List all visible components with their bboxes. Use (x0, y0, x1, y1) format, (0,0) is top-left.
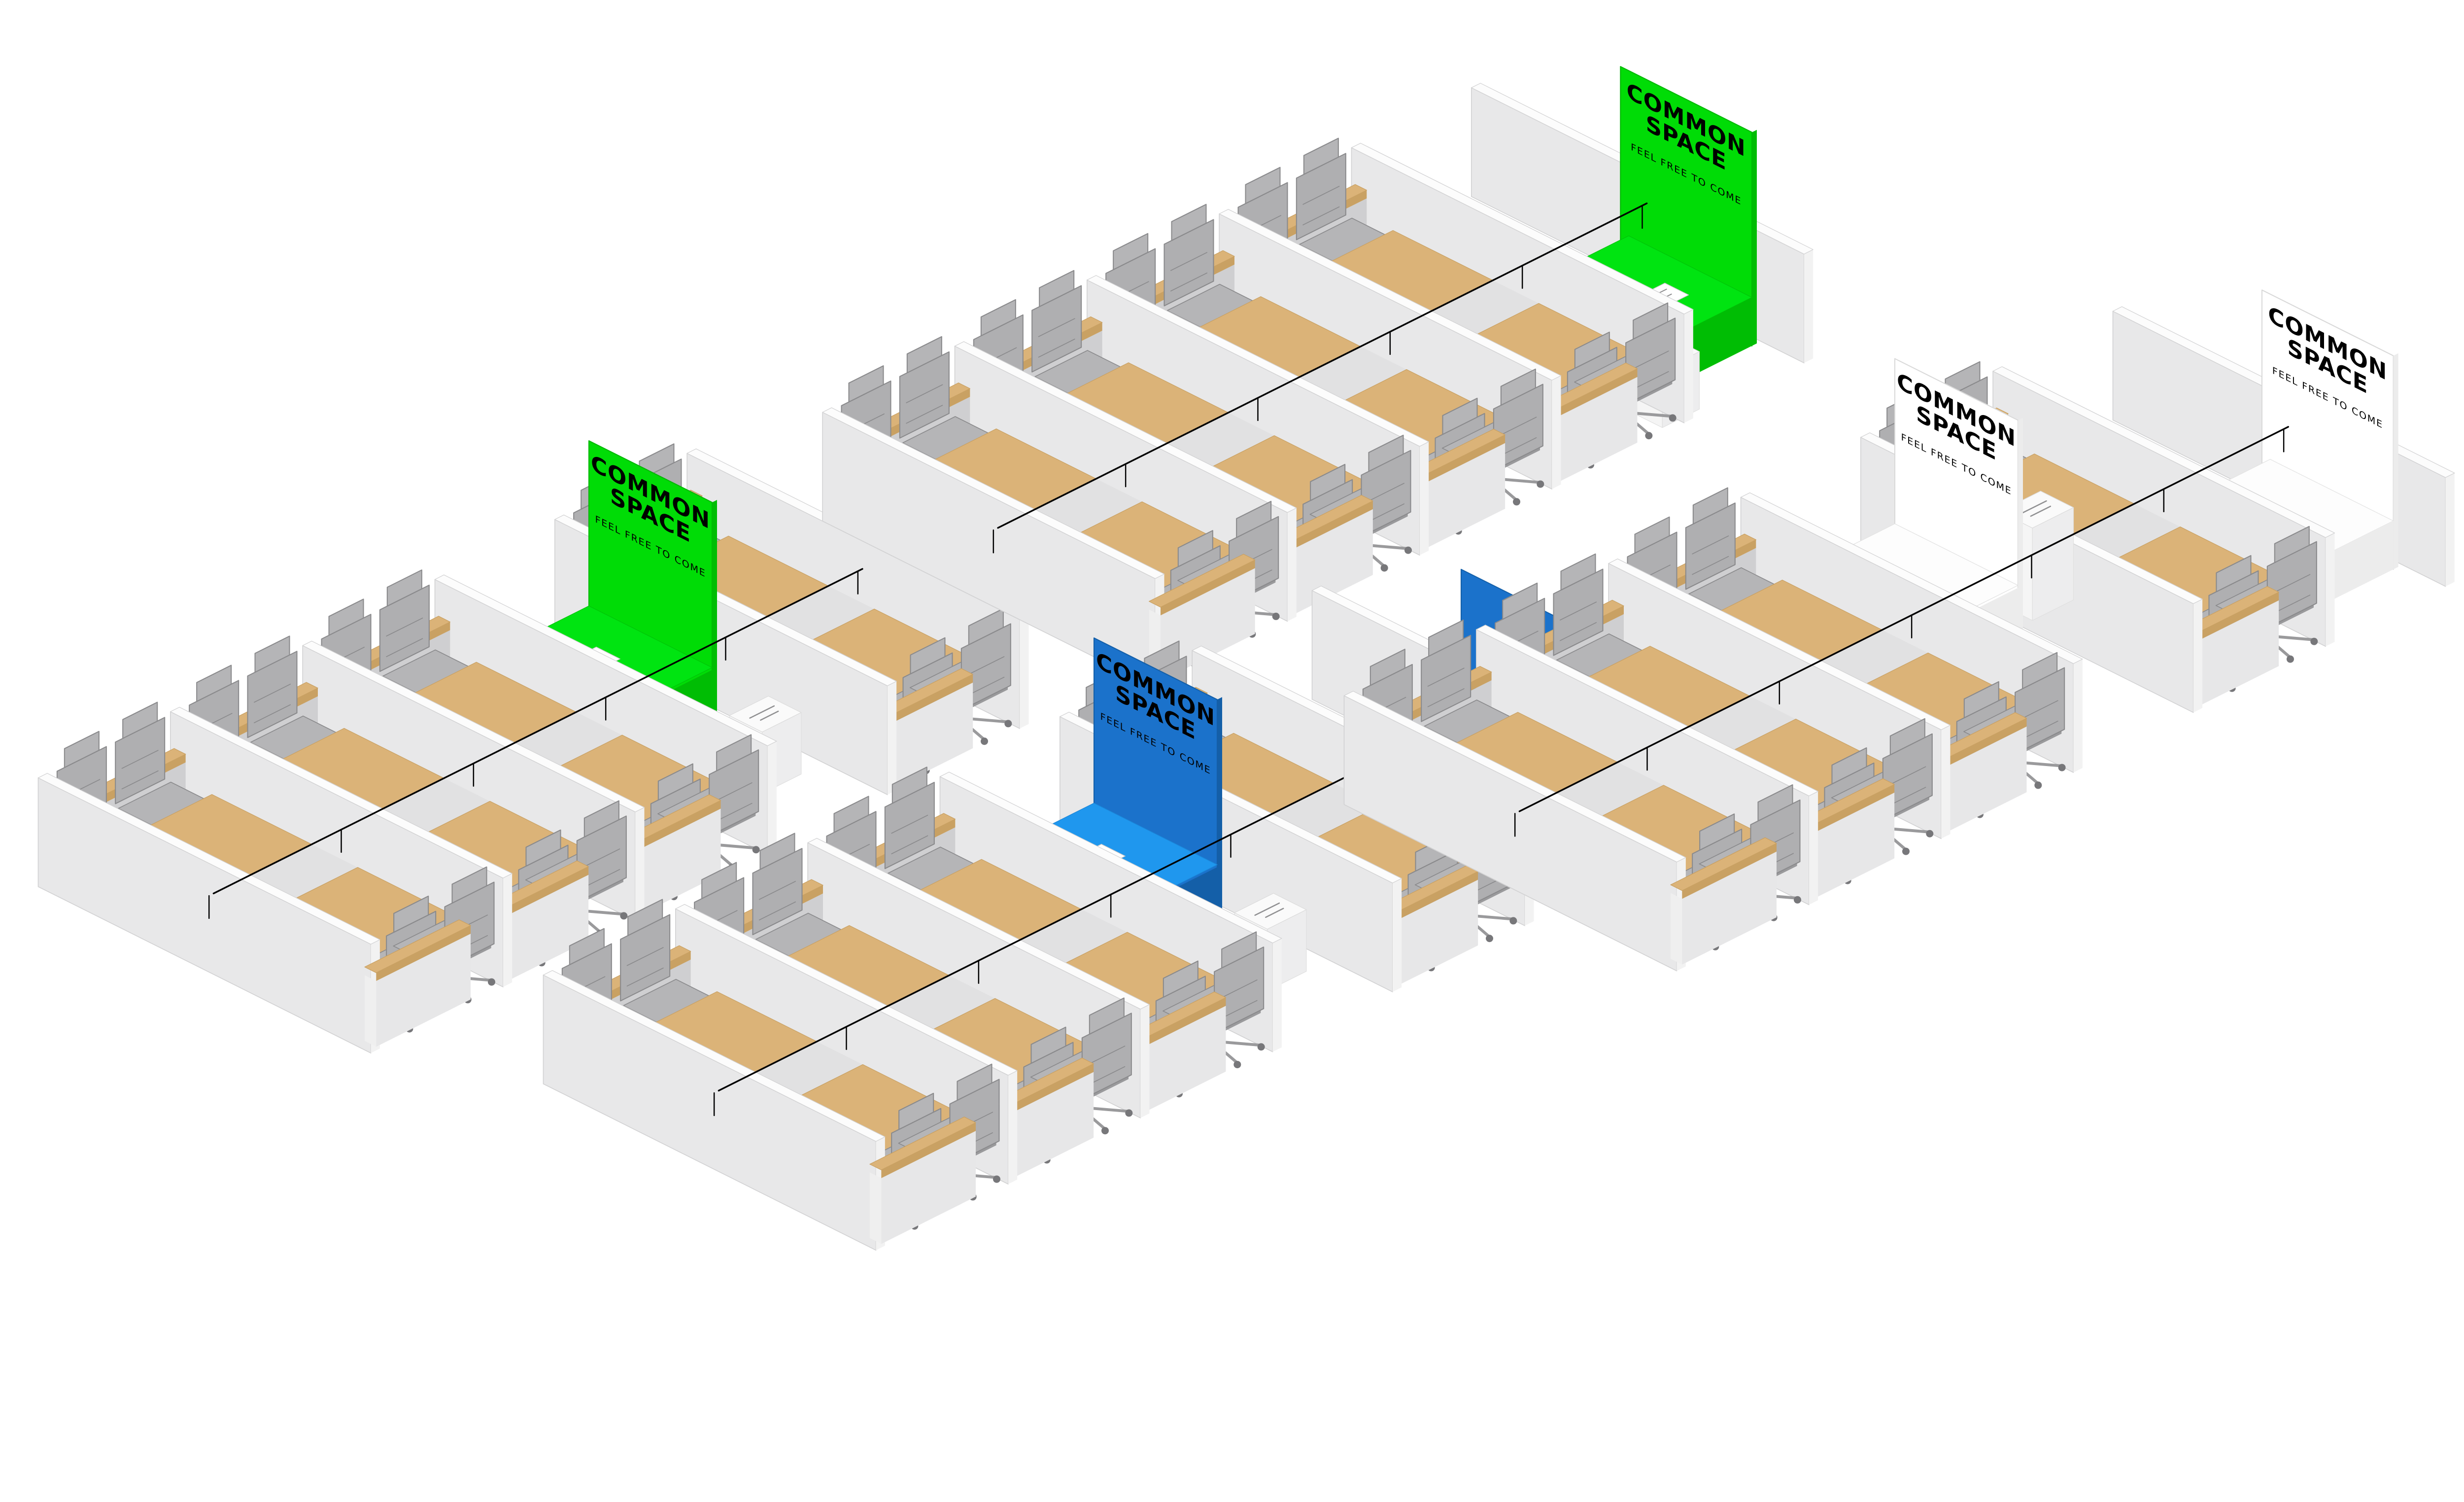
chair-wheel (2287, 656, 2294, 663)
partition-wall-side (1552, 376, 1561, 489)
chair-wheel (1902, 848, 1910, 855)
partition-wall-side (1272, 939, 1281, 1052)
chair-wheel (1004, 720, 1012, 727)
privacy-screen-end (365, 975, 376, 1047)
partition-wall-side (1020, 615, 1028, 729)
chair-wheel (2310, 638, 2318, 645)
common-space-sign-panel-edge (1752, 130, 1757, 346)
chair-wheel (1537, 481, 1544, 488)
office-floor-isometric-view: COMMONSPACEFEEL FREE TO COMECOMMONSPACEF… (0, 0, 2464, 1252)
partition-wall-side (1941, 725, 1950, 838)
partition-wall-side (888, 681, 896, 795)
chair-wheel (1101, 1127, 1109, 1134)
partition-wall-side (2073, 659, 2082, 772)
chair-wheel (1233, 1061, 1241, 1068)
partition-wall-side (1684, 310, 1693, 423)
chair-wheel (1926, 830, 1933, 838)
common-space-sign-panel-edge (712, 500, 717, 716)
partition-wall-side (1287, 508, 1296, 621)
partition-wall-side (1420, 442, 1429, 555)
common-space-sign-panel-edge (2394, 353, 2398, 569)
chair-wheel (1669, 414, 1677, 421)
partition-wall-side (503, 873, 512, 987)
partition-wall-side (635, 807, 644, 921)
partition-wall-side (2193, 599, 2202, 712)
chair-wheel (620, 912, 627, 919)
chair-wheel (1404, 547, 1412, 554)
chair-wheel (488, 978, 495, 986)
partition-wall-side (2326, 533, 2334, 646)
privacy-screen-end (870, 1172, 881, 1244)
common-space-sign-panel-edge (1217, 697, 1222, 913)
chair-wheel (1509, 917, 1517, 924)
chair-wheel (1513, 498, 1520, 505)
chair-wheel (993, 1176, 1000, 1183)
chair-wheel (981, 737, 988, 745)
chair-wheel (1125, 1109, 1132, 1117)
chair-wheel (1486, 935, 1493, 942)
chair-wheel (2058, 764, 2066, 771)
privacy-screen-end (1671, 893, 1682, 965)
common-space-sign-panel-edge (2018, 418, 2023, 633)
partition-wall-side (1008, 1071, 1017, 1184)
chair-wheel (753, 846, 760, 853)
partition-wall-side (1140, 1005, 1149, 1118)
chair-wheel (2034, 781, 2042, 789)
partition-wall-side (1804, 249, 1813, 363)
partition-wall-side (2445, 473, 2454, 587)
chair-wheel (1272, 613, 1280, 620)
partition-wall-side (1393, 878, 1402, 992)
partition-wall-side (1809, 791, 1818, 905)
chair-wheel (1794, 896, 1801, 904)
chair-wheel (1258, 1043, 1265, 1050)
partition-wall-side (768, 741, 777, 855)
chair-wheel (1381, 564, 1388, 572)
chair-wheel (1645, 432, 1652, 439)
